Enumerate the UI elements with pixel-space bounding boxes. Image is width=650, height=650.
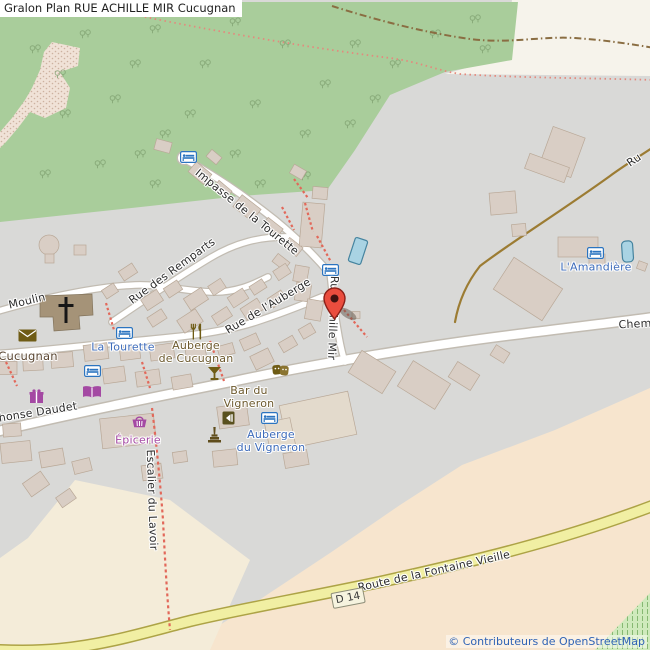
location-marker-pin[interactable] [323,287,346,324]
swimming-pool [348,237,368,265]
restaurant-fork-knife-icon [190,323,203,340]
swimming-pool [621,241,633,263]
map-title: Gralon Plan RUE ACHILLE MIR Cucugnan [0,0,242,17]
hotel-bed-icon [322,264,339,276]
poi-label-amandiere: L'Amandière [560,261,631,274]
street-label-chemin: Chem [618,317,650,332]
book-shop-icon [82,385,102,399]
hotel-bed-icon [261,412,278,424]
church-cross-icon [58,297,74,323]
grocery-basket-icon [131,415,148,428]
poi-label-auberge-du-vigneron: Auberge du Vigneron [237,428,306,454]
theatre-masks-icon [272,364,289,377]
windmill-building [39,235,59,255]
monument-icon [207,426,222,443]
map-canvas[interactable]: Impasse de la Tourette Rue des Remparts … [0,0,650,650]
bar-cocktail-icon [207,366,222,381]
poi-label-bar-du-vigneron: Bar du Vigneron [224,384,275,410]
osm-attribution-link[interactable]: © Contributeurs de OpenStreetMap [446,635,647,648]
hotel-bed-icon [180,151,197,163]
hotel-bed-icon [116,327,133,339]
poi-label-auberge-de-cucugnan: Auberge de Cucugnan [159,339,234,365]
artwork-icon [222,411,235,425]
place-label-cucugnan: Cucugnan [0,349,58,363]
post-envelope-icon [18,329,37,342]
poi-label-epicerie: Épicerie [115,434,161,447]
map-base-layer [0,0,650,650]
poi-label-la-tourette: La Tourette [91,341,155,354]
gift-shop-icon [29,389,44,404]
hotel-bed-icon [84,365,101,377]
hotel-bed-icon [587,247,604,259]
